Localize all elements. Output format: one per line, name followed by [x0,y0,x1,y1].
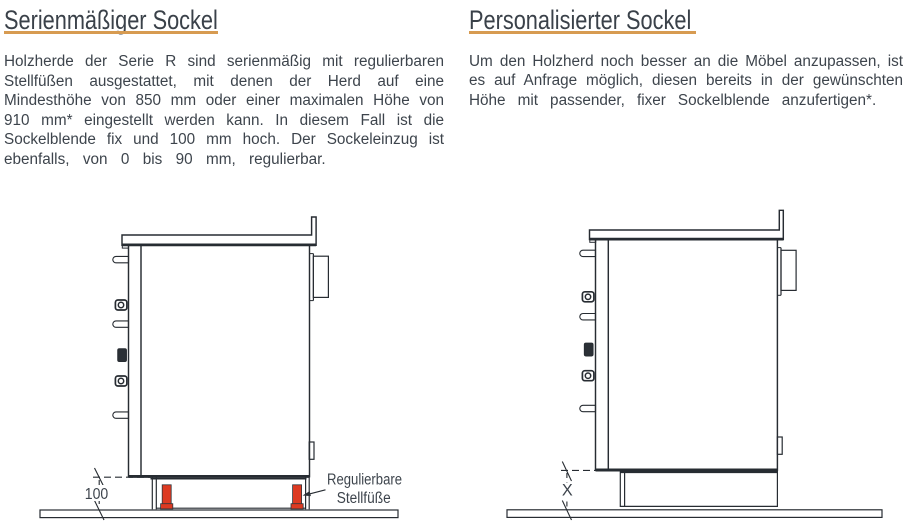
svg-text:Regulierbare: Regulierbare [327,471,402,488]
svg-text:100: 100 [85,486,109,503]
svg-text:X: X [562,482,573,500]
svg-text:Stellfüße: Stellfüße [337,490,391,507]
